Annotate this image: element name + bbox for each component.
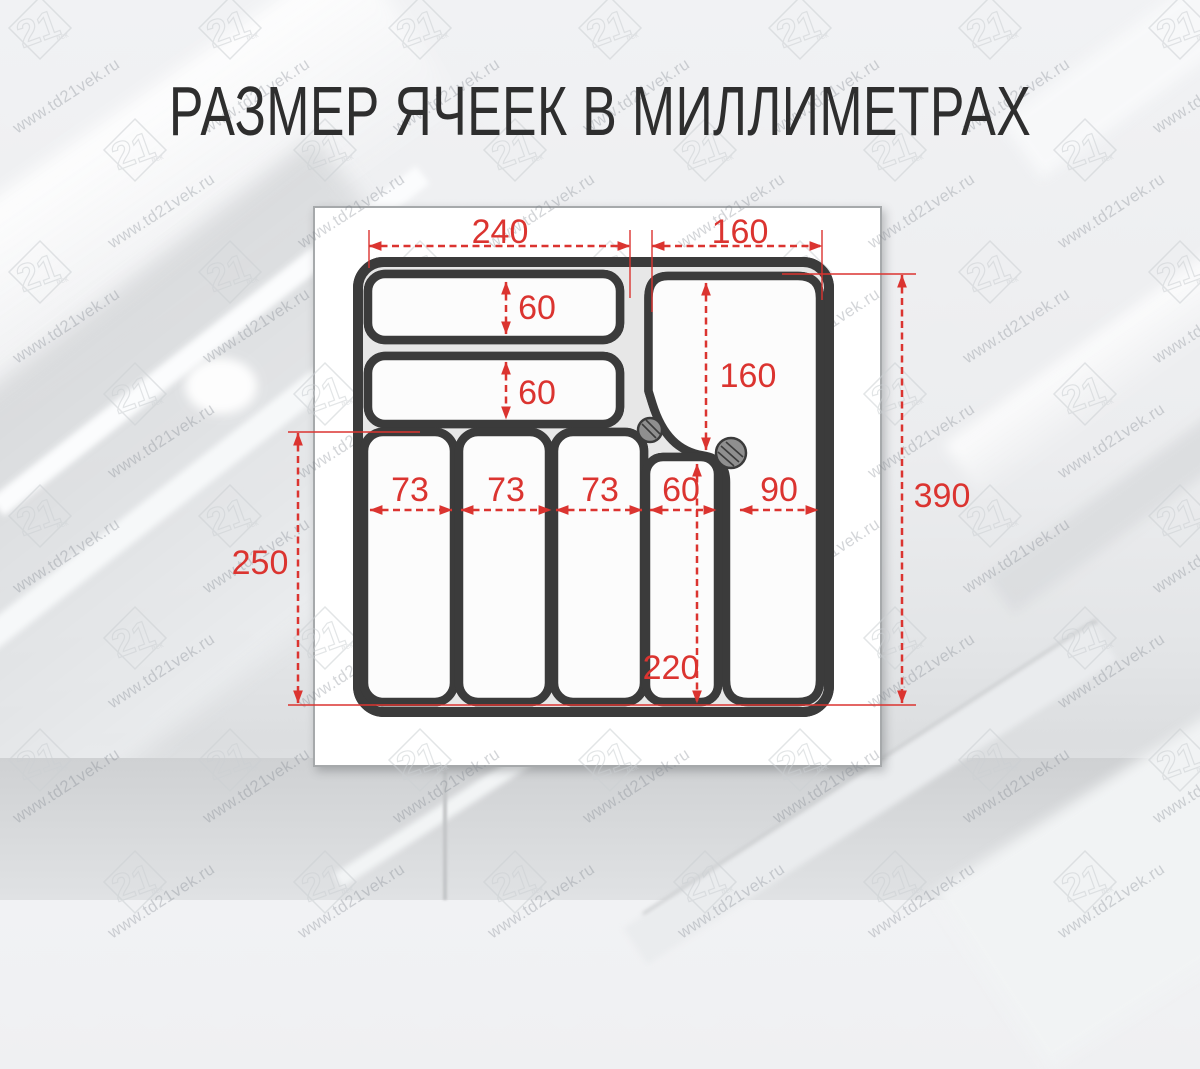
- watermark-text: www.td21vek.ru: [105, 170, 219, 253]
- watermark-logo: 21век: [955, 0, 1025, 63]
- svg-text:21: 21: [201, 491, 255, 545]
- dim-label-250: 250: [232, 544, 289, 582]
- watermark-logo: 21век: [575, 0, 645, 63]
- svg-text:век: век: [910, 152, 925, 165]
- svg-text:век: век: [815, 30, 830, 43]
- svg-text:век: век: [1005, 274, 1020, 287]
- svg-text:век: век: [910, 396, 925, 409]
- background-bright-wedge: [933, 621, 1200, 1069]
- watermark-text: www.td21vek.ru: [1055, 860, 1169, 943]
- watermark-text: www.td21vek.ru: [960, 745, 1074, 828]
- watermark-text: www.td21vek.ru: [10, 745, 124, 828]
- watermark-text: www.td21vek.ru: [10, 515, 124, 598]
- svg-text:век: век: [1195, 274, 1200, 287]
- svg-text:21: 21: [1151, 247, 1200, 301]
- svg-text:век: век: [1005, 30, 1020, 43]
- watermark-text: www.td21vek.ru: [105, 400, 219, 483]
- svg-text:век: век: [1005, 762, 1020, 775]
- watermark-text: www.td21vek.ru: [200, 515, 314, 598]
- watermark-logo: 21век: [5, 0, 75, 63]
- svg-text:век: век: [720, 152, 735, 165]
- watermark-logo: 21век: [1145, 0, 1200, 63]
- watermark-logo: 21век: [480, 847, 550, 917]
- svg-text:век: век: [1195, 30, 1200, 43]
- svg-text:21: 21: [106, 613, 160, 667]
- svg-text:век: век: [245, 30, 260, 43]
- background-shade: [986, 272, 1200, 615]
- watermark-text: www.td21vek.ru: [485, 860, 599, 943]
- svg-text:21: 21: [106, 125, 160, 179]
- watermark-logo: 21век: [670, 847, 740, 917]
- svg-text:21: 21: [1056, 369, 1110, 423]
- watermark-logo: 21век: [1050, 847, 1120, 917]
- watermark-text: www.td21vek.ru: [1150, 745, 1200, 828]
- watermark-text: www.td21vek.ru: [10, 285, 124, 368]
- watermark-logo: 21век: [195, 0, 265, 63]
- watermark-logo: 21век: [1050, 359, 1120, 429]
- svg-text:21: 21: [771, 3, 825, 57]
- svg-text:21: 21: [1056, 125, 1110, 179]
- svg-text:век: век: [1100, 152, 1115, 165]
- watermark-logo: 21век: [290, 847, 360, 917]
- watermark-text: www.td21vek.ru: [960, 285, 1074, 368]
- watermark-text: www.td21vek.ru: [105, 630, 219, 713]
- watermark-text: www.td21vek.ru: [105, 860, 219, 943]
- watermark-text: www.td21vek.ru: [1055, 170, 1169, 253]
- svg-text:век: век: [55, 274, 70, 287]
- svg-text:век: век: [150, 640, 165, 653]
- svg-text:век: век: [1195, 518, 1200, 531]
- watermark-logo: 21век: [5, 481, 75, 551]
- svg-text:век: век: [55, 762, 70, 775]
- watermark-logo: 21век: [1050, 115, 1120, 185]
- svg-text:21: 21: [11, 491, 65, 545]
- svg-text:век: век: [1195, 762, 1200, 775]
- watermark-text: www.td21vek.ru: [10, 55, 124, 138]
- watermark-logo: 21век: [1145, 481, 1200, 551]
- svg-text:21: 21: [1056, 613, 1110, 667]
- svg-text:21: 21: [1151, 491, 1200, 545]
- svg-text:21: 21: [866, 857, 920, 911]
- watermark-logo: 21век: [100, 359, 170, 429]
- watermark-text: www.td21vek.ru: [1055, 400, 1169, 483]
- svg-text:век: век: [625, 30, 640, 43]
- watermark-text: www.td21vek.ru: [960, 515, 1074, 598]
- svg-text:век: век: [245, 762, 260, 775]
- svg-text:21: 21: [201, 735, 255, 789]
- svg-text:век: век: [150, 396, 165, 409]
- watermark-logo: 21век: [5, 725, 75, 795]
- watermark-text: www.td21vek.ru: [1055, 630, 1169, 713]
- watermark-text: www.td21vek.ru: [1150, 285, 1200, 368]
- svg-text:21: 21: [961, 735, 1015, 789]
- watermark-logo: 21век: [195, 481, 265, 551]
- watermark-logo: 21век: [385, 0, 455, 63]
- watermark-logo: 21век: [100, 847, 170, 917]
- watermark-logo: 21век: [1145, 237, 1200, 307]
- watermark-logo: 21век: [765, 0, 835, 63]
- watermark-text: www.td21vek.ru: [200, 745, 314, 828]
- watermark-logo: 21век: [955, 237, 1025, 307]
- svg-text:21: 21: [1056, 857, 1110, 911]
- svg-text:век: век: [340, 152, 355, 165]
- svg-text:21: 21: [201, 247, 255, 301]
- svg-text:21: 21: [676, 857, 730, 911]
- watermark-text: www.td21vek.ru: [200, 285, 314, 368]
- svg-text:21: 21: [11, 247, 65, 301]
- svg-text:21: 21: [106, 857, 160, 911]
- svg-text:21: 21: [11, 3, 65, 57]
- svg-text:век: век: [1100, 640, 1115, 653]
- svg-text:21: 21: [961, 3, 1015, 57]
- drawing-panel: [313, 206, 882, 767]
- page-title: РАЗМЕР ЯЧЕЕК В МИЛЛИМЕТРАХ: [156, 76, 1044, 146]
- watermark-text: www.td21vek.ru: [1150, 55, 1200, 138]
- svg-text:век: век: [55, 30, 70, 43]
- watermark-text: www.td21vek.ru: [1150, 515, 1200, 598]
- svg-text:21: 21: [106, 369, 160, 423]
- watermark-logo: 21век: [955, 725, 1025, 795]
- background-bottom-band: [0, 758, 1200, 900]
- svg-text:век: век: [530, 884, 545, 897]
- background-streak: [944, 169, 1200, 502]
- watermark-text: www.td21vek.ru: [865, 860, 979, 943]
- svg-text:век: век: [245, 274, 260, 287]
- watermark-logo: 21век: [195, 237, 265, 307]
- svg-text:21: 21: [961, 491, 1015, 545]
- svg-text:век: век: [1100, 884, 1115, 897]
- svg-text:век: век: [340, 884, 355, 897]
- watermark-logo: 21век: [1145, 725, 1200, 795]
- watermark-text: www.td21vek.ru: [675, 860, 789, 943]
- svg-text:век: век: [55, 518, 70, 531]
- page: { "title": "РАЗМЕР ЯЧЕЕК В МИЛЛИМЕТРАХ",…: [0, 0, 1200, 900]
- svg-text:век: век: [530, 152, 545, 165]
- svg-text:21: 21: [11, 735, 65, 789]
- svg-text:21: 21: [581, 3, 635, 57]
- watermark-logo: 21век: [860, 847, 930, 917]
- svg-text:21: 21: [961, 247, 1015, 301]
- svg-text:век: век: [910, 640, 925, 653]
- svg-text:век: век: [1100, 396, 1115, 409]
- watermark-logo: 21век: [1050, 603, 1120, 673]
- svg-text:век: век: [435, 30, 450, 43]
- watermark-logo: 21век: [5, 237, 75, 307]
- watermark-text: www.td21vek.ru: [295, 860, 409, 943]
- svg-text:21: 21: [486, 857, 540, 911]
- background-drawer-seam: [443, 772, 447, 900]
- svg-text:век: век: [150, 152, 165, 165]
- svg-text:21: 21: [201, 3, 255, 57]
- background-highlight: [185, 358, 257, 414]
- svg-text:век: век: [245, 518, 260, 531]
- svg-text:21: 21: [391, 3, 445, 57]
- dim-label-390: 390: [914, 477, 971, 515]
- watermark-logo: 21век: [100, 603, 170, 673]
- svg-text:21: 21: [1151, 735, 1200, 789]
- watermark-logo: 21век: [195, 725, 265, 795]
- svg-text:век: век: [1005, 518, 1020, 531]
- watermark-logo: 21век: [955, 481, 1025, 551]
- svg-text:век: век: [910, 884, 925, 897]
- svg-text:21: 21: [1151, 3, 1200, 57]
- svg-text:век: век: [720, 884, 735, 897]
- svg-text:21: 21: [296, 857, 350, 911]
- svg-text:век: век: [150, 884, 165, 897]
